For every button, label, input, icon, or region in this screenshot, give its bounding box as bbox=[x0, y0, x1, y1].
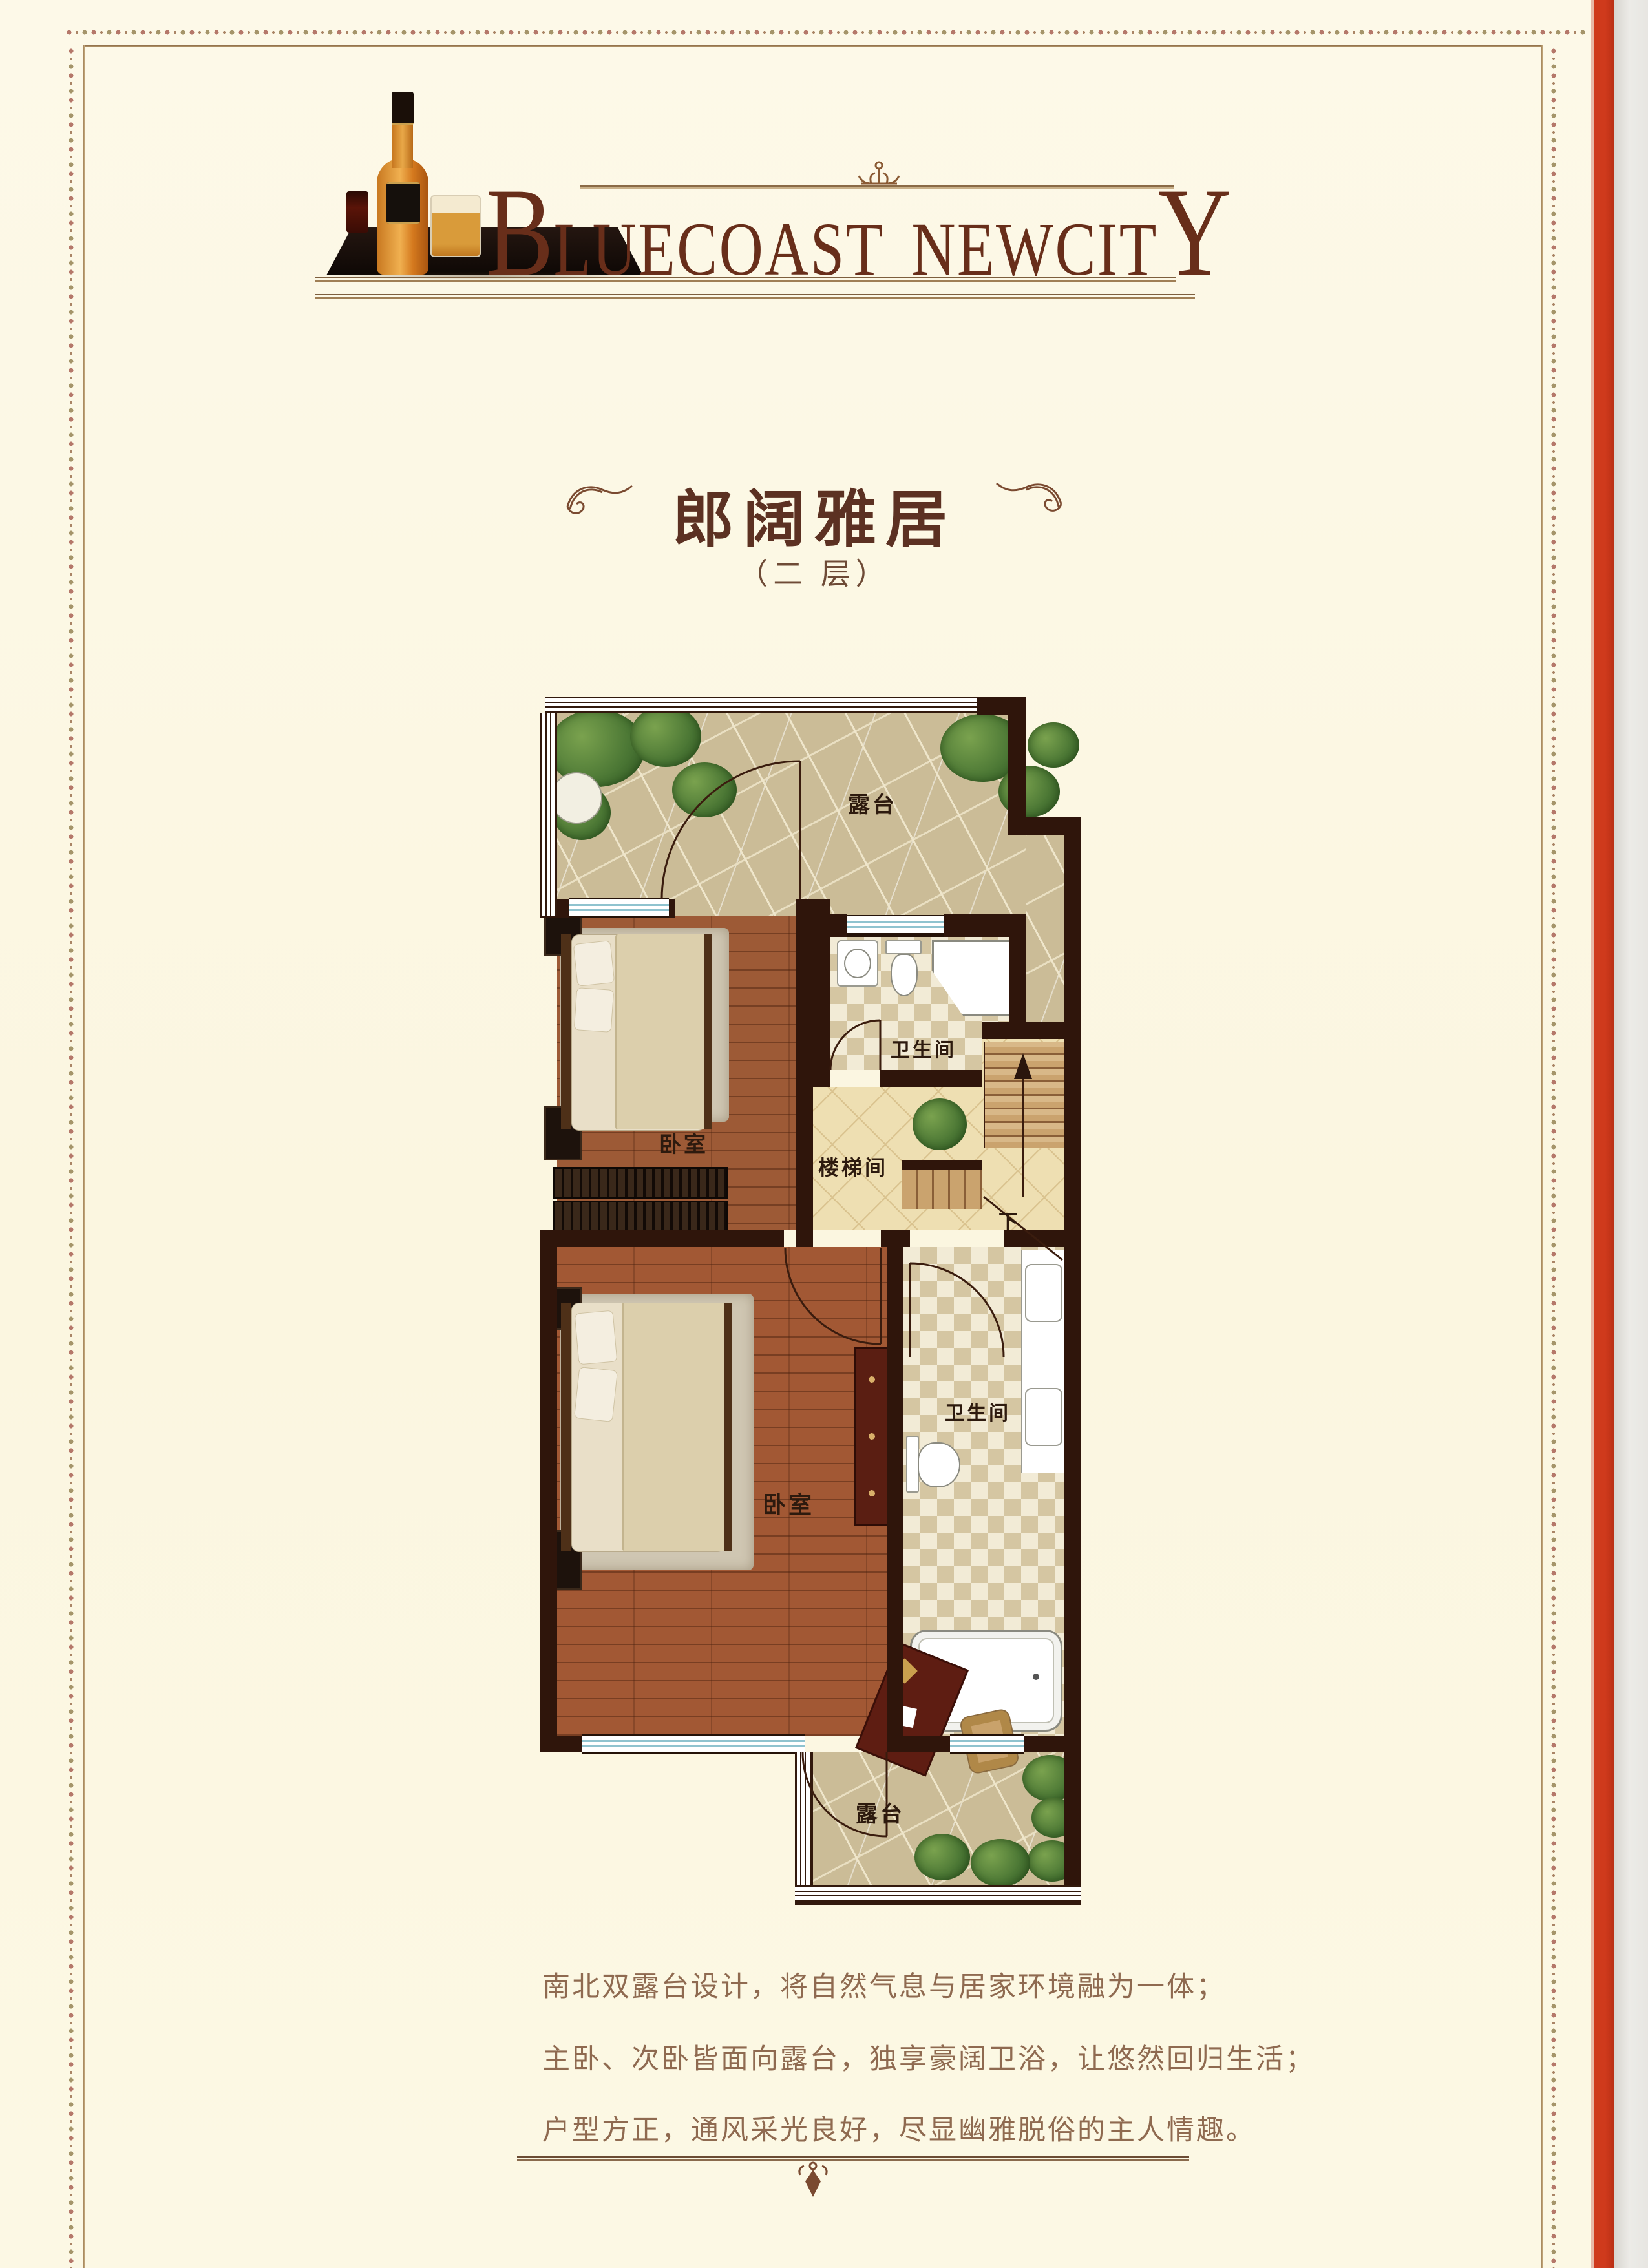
label-stairwell: 楼梯间 bbox=[818, 1151, 888, 1181]
footer-pendant-icon bbox=[794, 2159, 832, 2201]
label-down: 下 bbox=[998, 1206, 1020, 1234]
description-line-1: 南北双露台设计，将自然气息与居家环境融为一体； bbox=[542, 1964, 1226, 2004]
brochure-page: BLUECOASTNEWCITY 郎阔雅居 （二 层） bbox=[0, 0, 1648, 2268]
label-terrace-top: 露台 bbox=[848, 787, 897, 819]
label-bedroom-top: 卧室 bbox=[659, 1127, 708, 1159]
label-bath-top: 卫生间 bbox=[891, 1034, 956, 1062]
footer-rule bbox=[517, 2156, 1189, 2161]
description-line-3: 户型方正，通风采光良好，尽显幽雅脱俗的主人情趣。 bbox=[542, 2108, 1256, 2148]
stair-up-arrow-icon bbox=[1014, 1053, 1032, 1079]
label-bath-bottom: 卫生间 bbox=[945, 1397, 1011, 1425]
description-line-2: 主卧、次卧皆面向露台，独享豪阔卫浴，让悠然回归生活； bbox=[542, 2037, 1315, 2077]
door-swings-overlay bbox=[0, 0, 1648, 2268]
label-bedroom-bottom: 卧室 bbox=[763, 1486, 814, 1520]
label-terrace-bottom: 露台 bbox=[856, 1796, 905, 1828]
